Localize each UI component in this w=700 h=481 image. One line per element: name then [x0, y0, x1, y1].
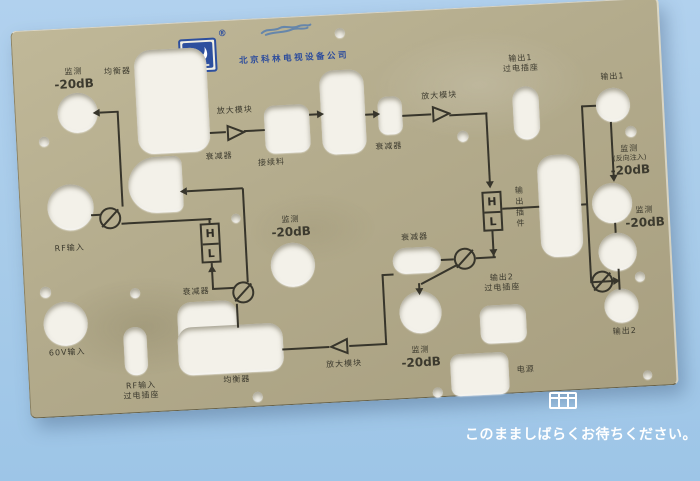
power-module-cutout	[450, 352, 510, 397]
label-attenuator-mid: 衰减器	[368, 141, 410, 154]
signal-line	[485, 112, 491, 184]
mounting-hole	[253, 392, 264, 403]
output1-port-hole	[595, 87, 631, 123]
label-splice-part: 接续料	[248, 157, 294, 170]
label-rf-socket: RF输入过电插座	[114, 379, 169, 403]
signal-line	[581, 105, 592, 283]
signal-line	[236, 304, 239, 328]
mounting-hole	[335, 28, 346, 39]
wait-message: このまましばらくお待ちください。	[465, 424, 697, 444]
signal-line	[349, 343, 387, 347]
module-cutout-tall	[319, 69, 367, 155]
table-icon	[549, 392, 577, 409]
flow-arrow-icon	[317, 110, 324, 118]
rf-socket-slot	[123, 327, 148, 376]
label-equalizer-bottom: 均衡器	[216, 374, 258, 387]
signal-line	[282, 346, 329, 350]
signal-line	[210, 131, 226, 134]
label-60v-input: 60V输入	[43, 346, 91, 359]
signal-line	[382, 274, 394, 277]
signal-line	[382, 275, 388, 345]
signal-line	[582, 105, 596, 108]
metal-panel: ® 北京科林电视设备公司	[10, 0, 678, 419]
label-attenuator-topleft: 衰减器	[198, 150, 240, 163]
signal-line	[208, 218, 210, 224]
signal-line	[402, 113, 431, 117]
rf-input-port-hole	[46, 183, 94, 231]
diplex-filter-symbol-right: HL	[481, 191, 503, 232]
diplex-filter-symbol-left: HL	[200, 223, 222, 264]
flow-arrow-icon	[373, 110, 380, 118]
signal-line	[187, 187, 243, 192]
equalizer-cutout-top	[133, 47, 210, 155]
mounting-hole	[130, 288, 141, 299]
registered-trademark: ®	[217, 29, 227, 39]
label-attenuator-bottommid: 衰减器	[393, 231, 435, 244]
equalizer-cutout-bottom-b	[177, 322, 284, 375]
watermark-scribble-icon	[257, 17, 314, 40]
label-amplifier-2: 放大模块	[415, 90, 463, 103]
output2-socket-cutout	[479, 304, 527, 344]
label-rf-input: RF输入	[47, 242, 93, 255]
monitor-port-hole-mid	[270, 242, 316, 288]
signal-line	[449, 112, 487, 116]
signal-line	[614, 223, 617, 233]
label-monitor-bottom: 监测-20dB	[396, 344, 445, 372]
signal-line	[212, 287, 234, 290]
label-output-plugin: 输出插件	[513, 186, 527, 239]
mounting-hole	[635, 271, 646, 282]
attenuator-cutout-mid	[377, 96, 403, 135]
splitter-symbol	[232, 281, 255, 304]
mounting-hole	[457, 130, 469, 142]
amplifier-symbol-icon	[225, 123, 246, 142]
flow-arrow-icon	[180, 187, 187, 195]
label-monitor-topleft: 监测-20dB	[47, 66, 100, 95]
mounting-hole	[231, 213, 240, 222]
company-name: 北京科林电视设备公司	[239, 49, 349, 67]
label-output1-socket: 输出1过电插座	[493, 52, 548, 76]
flow-arrow-icon	[92, 109, 99, 117]
splitter-symbol	[99, 207, 122, 230]
flow-arrow-icon	[208, 265, 216, 272]
mounting-hole	[625, 126, 637, 138]
label-output2: 输出2	[606, 326, 644, 338]
mounting-hole	[39, 136, 50, 147]
output-plugin-cutout	[537, 154, 584, 258]
label-amplifier-1: 放大模块	[212, 104, 258, 117]
signal-line	[618, 269, 621, 290]
signal-line	[441, 258, 454, 261]
attenuator-cutout-bottom	[392, 246, 441, 274]
signal-line	[581, 203, 587, 205]
signal-line	[242, 188, 249, 282]
signal-line	[244, 129, 265, 132]
monitor-port-hole-right	[598, 232, 638, 272]
mounting-hole	[643, 370, 652, 379]
amplifier-symbol-icon	[329, 337, 350, 356]
label-monitor-right: 监测-20dB	[621, 204, 668, 232]
power-60v-port-hole	[43, 301, 89, 347]
label-equalizer-top: 均衡器	[99, 66, 135, 78]
label-power: 电源	[509, 364, 541, 376]
label-monitor-mid: 监测-20dB	[265, 214, 316, 243]
label-output2-socket: 输出2过电插座	[475, 271, 530, 295]
signal-line	[121, 218, 211, 225]
signal-line	[476, 256, 496, 259]
output1-socket-slot	[512, 86, 541, 140]
attenuator-cutout-topleft	[127, 155, 184, 214]
mounting-hole	[40, 286, 52, 298]
photo-stage: ® 北京科林电视设备公司	[0, 0, 700, 481]
label-output1: 输出1	[594, 71, 630, 83]
label-amplifier-3: 放大模块	[320, 358, 368, 371]
monitor-port-hole-bottom	[398, 290, 442, 334]
output2-port-hole	[604, 288, 640, 324]
flow-arrow-icon	[486, 181, 494, 188]
splice-part-cutout	[264, 104, 311, 154]
mounting-hole	[433, 387, 444, 398]
signal-line	[117, 112, 124, 207]
flow-arrow-icon	[415, 288, 423, 295]
splitter-symbol	[453, 247, 476, 270]
flow-arrow-icon	[610, 175, 618, 182]
